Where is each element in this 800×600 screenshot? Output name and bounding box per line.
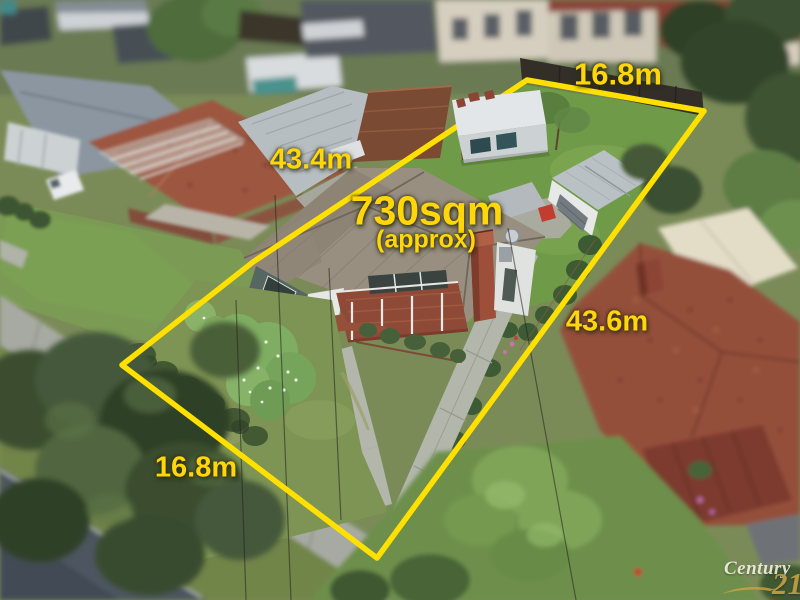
watermark-brand-number: 21	[772, 566, 800, 600]
aerial-property-photo: 16.8m 43.4m 730sqm (approx) 43.6m 16.8m …	[0, 0, 800, 600]
dimension-label-top-width: 16.8m	[574, 59, 662, 90]
dimension-label-right-length: 43.6m	[566, 308, 648, 337]
dimension-label-left-length: 43.4m	[270, 146, 352, 175]
rear-bungalow	[452, 90, 550, 166]
dimension-label-bottom-width: 16.8m	[155, 454, 237, 483]
century21-watermark: Century 21	[698, 548, 800, 600]
area-qualifier-label: (approx)	[376, 228, 476, 253]
aerial-photo-scene	[0, 0, 800, 600]
